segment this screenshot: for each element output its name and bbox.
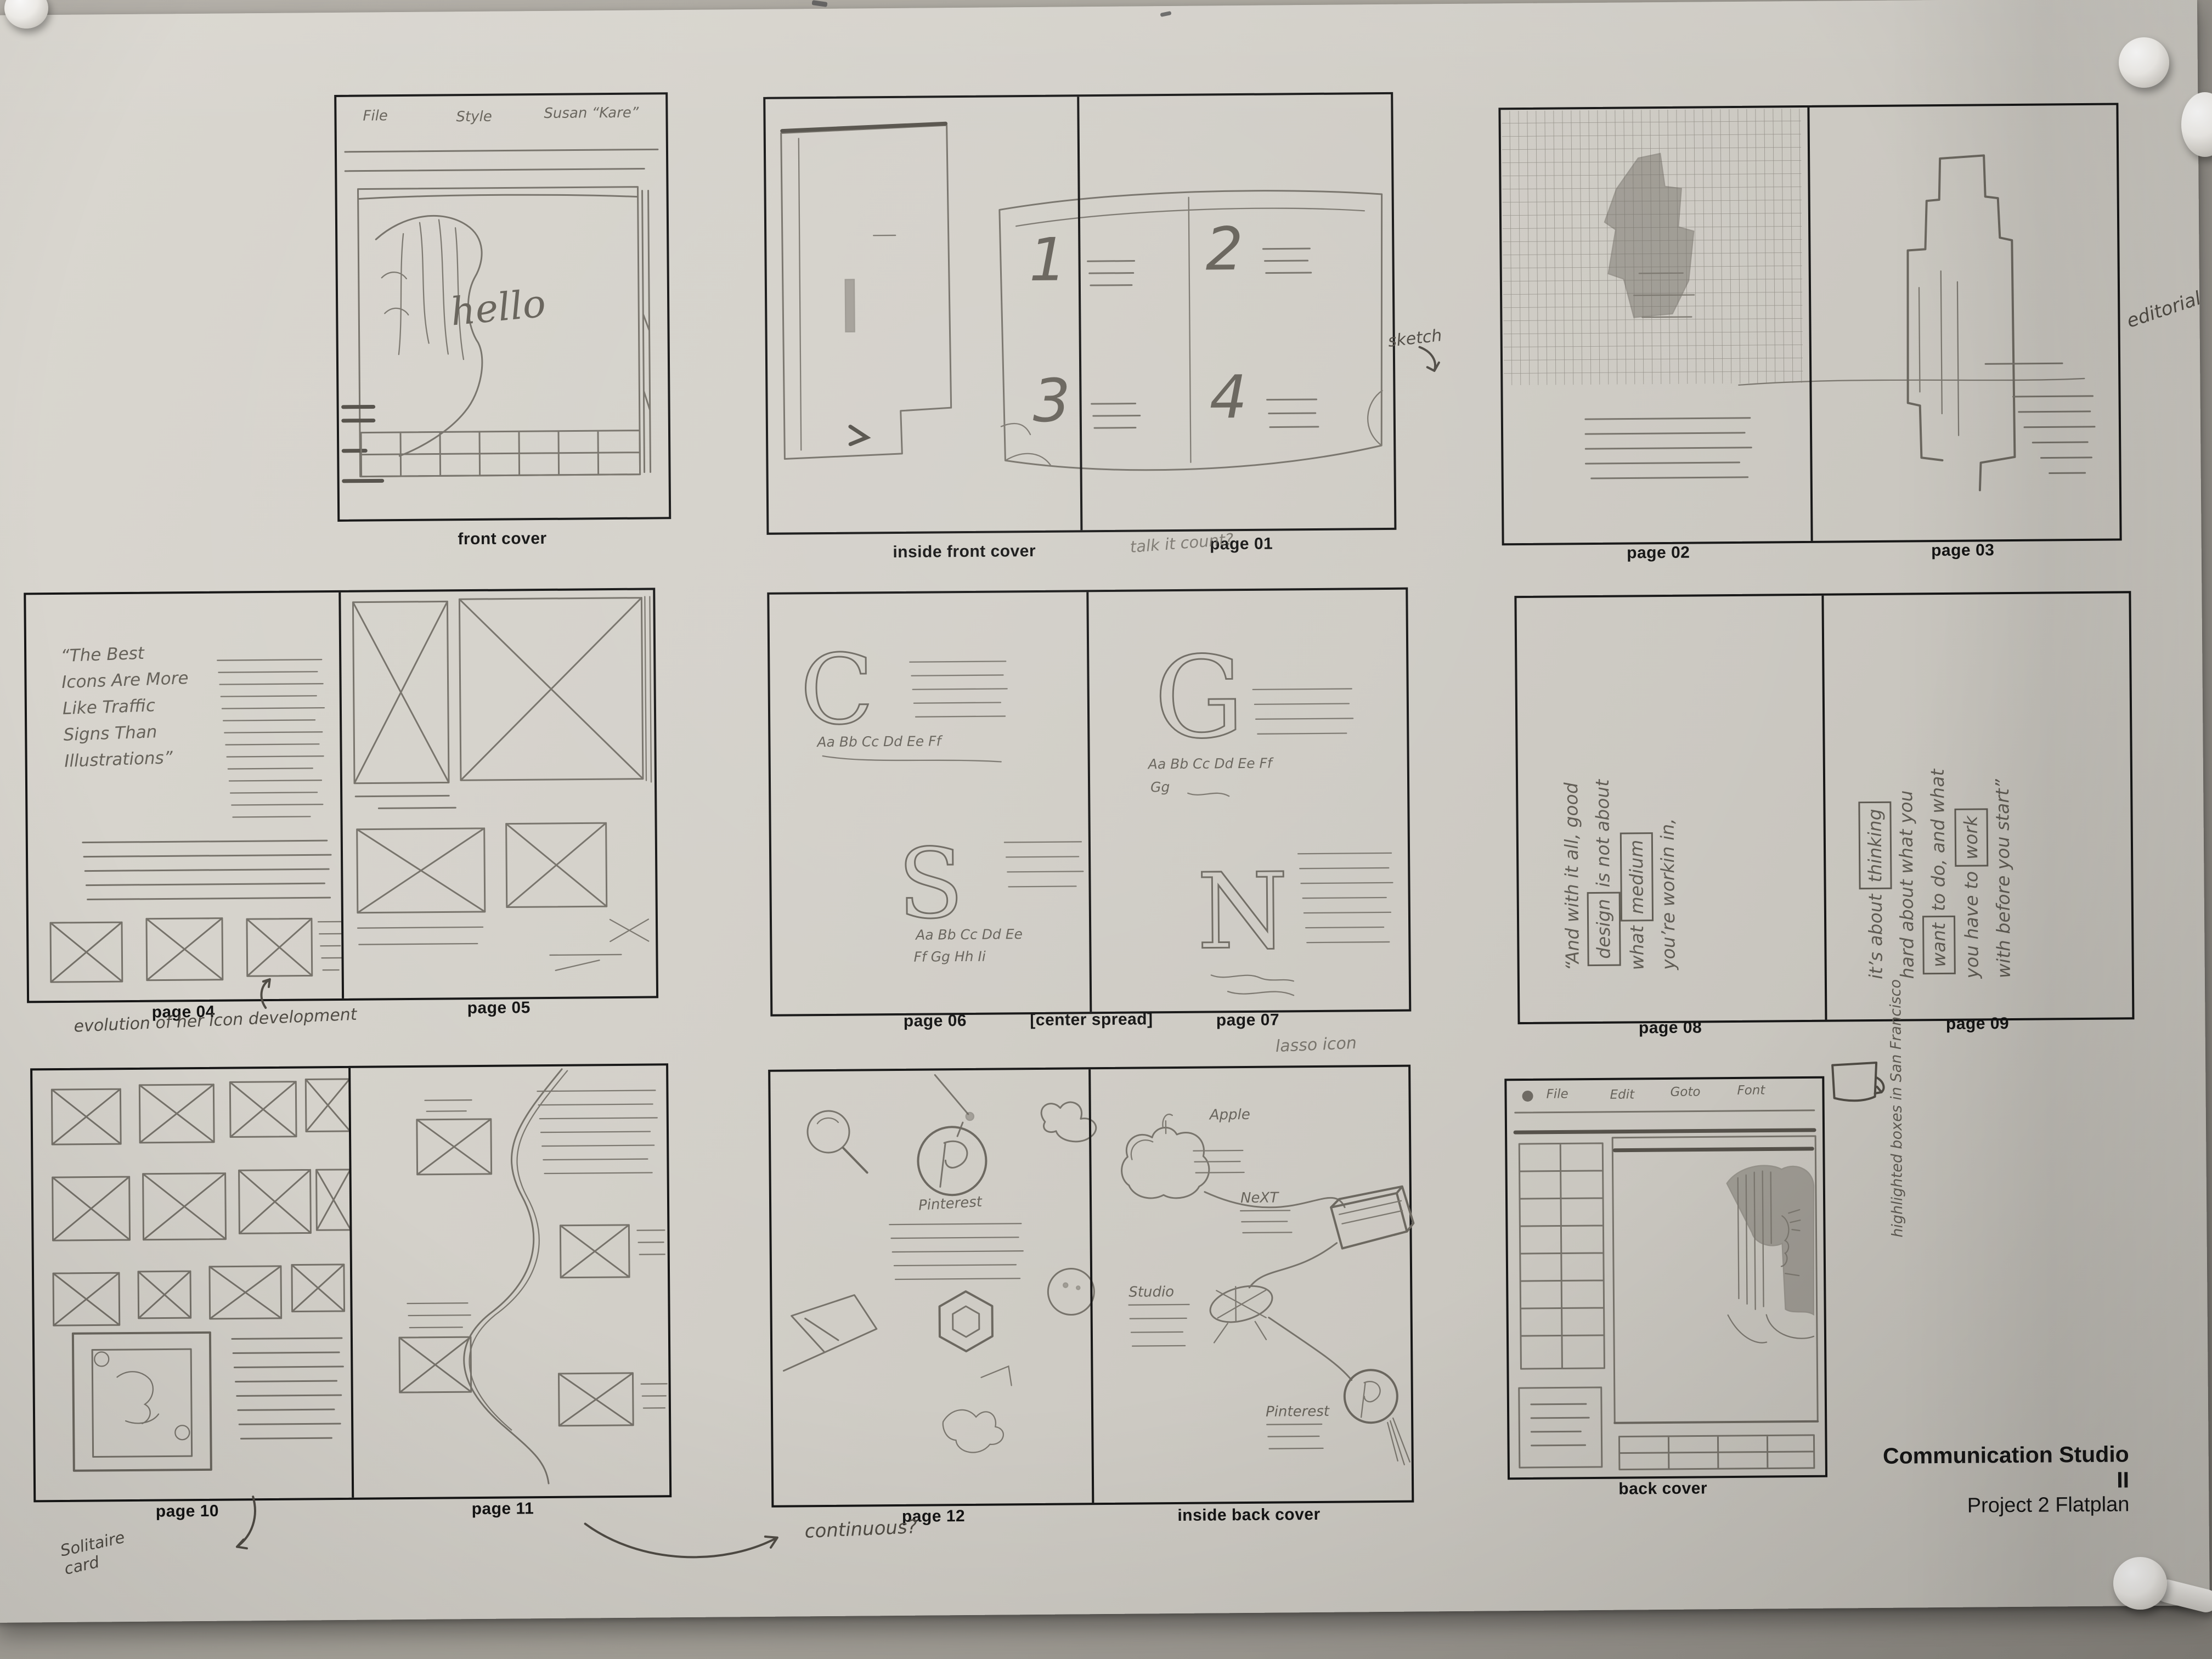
quote-line: you have to: [1961, 871, 1983, 979]
toc-number: 1: [1029, 226, 1067, 295]
label-page10: page 10: [72, 1502, 302, 1522]
fc-menu-item: Susan “Kare”: [544, 105, 639, 122]
annotation-lasso-icon: lasso icon: [1275, 1034, 1357, 1056]
label-inside-back-cover: inside back cover: [1133, 1505, 1364, 1525]
next-label: NeXT: [1240, 1190, 1278, 1207]
label-page07: page 07: [1132, 1010, 1363, 1030]
toc-number: 3: [1032, 366, 1071, 436]
back-cover-sketch: [1506, 1079, 1825, 1477]
bc-menu-item: Font: [1737, 1084, 1765, 1098]
panel-page02-03: [1498, 103, 2121, 545]
arrow-icon: [225, 1494, 264, 1555]
alphabet-row: Gg: [1150, 779, 1170, 795]
label-page03: page 03: [1848, 540, 2078, 561]
studio-label: Studio: [1128, 1284, 1174, 1301]
annotation-evolution: evolution of her icon development: [0, 0, 2197, 15]
wall-mark: [812, 0, 828, 7]
label-page02: page 02: [1543, 543, 1774, 563]
label-inside-front-cover: inside front cover: [849, 541, 1080, 562]
bc-menu-item: Edit: [1610, 1087, 1634, 1102]
quote-line: it’s about: [1865, 894, 1887, 979]
course-title: Communication Studio II: [1871, 1441, 2130, 1495]
quote-line: “And with it all, good: [1560, 782, 1583, 970]
alphabet-row: Aa Bb Cc Dd Ee: [916, 926, 1023, 943]
panel-ifc-page01: 1 2 3 4: [763, 92, 1396, 535]
pinterest-label: Pinterest: [1266, 1403, 1329, 1420]
annotation-text: continuous?: [804, 1516, 918, 1543]
arrow-icon: [1415, 341, 1452, 382]
label-front-cover: front cover: [387, 529, 617, 549]
panel-front-cover: File Style Susan “Kare” hello: [334, 92, 671, 522]
project-subtitle: Project 2 Flatplan: [1871, 1493, 2129, 1519]
annotation-highlighted-boxes: highlighted boxes in San Francisco: [0, 0, 2197, 15]
arrow-icon: [579, 1511, 799, 1573]
quote-line: with before you start”: [1991, 779, 2015, 978]
alphabet-row: Ff Gg Hh Ii: [913, 949, 985, 965]
quote-line: what: [1626, 926, 1648, 970]
annotation-text: Solitaire card: [59, 1522, 158, 1578]
toc-number: 4: [1209, 363, 1248, 432]
quote-line: is not about: [1592, 780, 1614, 888]
panel-page12-ibc: Pinterest Apple NeXT Studio Pinterest: [768, 1065, 1414, 1508]
annotation-editorial: editorial: [2124, 287, 2204, 332]
boxed-word-want: want: [1922, 916, 1956, 975]
hello-script: hello: [449, 281, 548, 335]
annotation-solitaire: Solitaire card: [0, 0, 2197, 15]
alphabet-row: Aa Bb Cc Dd Ee Ff: [1148, 755, 1272, 772]
photo-of-flatplan: File Style Susan “Kare” hello front cove…: [0, 0, 2212, 1659]
fc-menu-item: Style: [456, 109, 492, 126]
panel-page06-07: C S G N Aa Bb Cc Dd Ee Ff Aa Bb Cc Dd Ee…: [767, 588, 1411, 1017]
boxed-word-thinking: thinking: [1858, 802, 1892, 890]
bc-menu-item: File: [1546, 1087, 1568, 1101]
panel-page04-05: “The Best Icons Are More Like Traffic Si…: [24, 588, 658, 1003]
letter-S: S: [898, 828, 964, 940]
flatplan-sheet: File Style Susan “Kare” hello front cove…: [0, 0, 2210, 1623]
page09-rotated-quote: it’s aboutthinking hard about what you w…: [1858, 768, 2019, 979]
apple-label: Apple: [1210, 1107, 1250, 1124]
quote-line: to do, and what: [1927, 769, 1949, 911]
quote-line: hard about what you: [1895, 790, 1918, 979]
page04-quote: “The Best Icons Are More Like Traffic Si…: [60, 639, 191, 775]
page08-rotated-quote: “And with it all, good designis not abou…: [1556, 779, 1684, 971]
pushpin-top-right: [2119, 37, 2169, 88]
letter-N: N: [1197, 850, 1289, 972]
panel-page08-09: “And with it all, good designis not abou…: [1514, 591, 2134, 1024]
alphabet-row: Aa Bb Cc Dd Ee Ff: [817, 733, 941, 750]
bc-menu-item: Goto: [1670, 1085, 1700, 1099]
panel-page10-11: [30, 1063, 672, 1502]
letter-C: C: [800, 634, 874, 746]
boxed-word-medium: medium: [1620, 832, 1654, 921]
letter-G: G: [1154, 633, 1245, 764]
label-back-cover: back cover: [1548, 1479, 1778, 1499]
title-block: Communication Studio II Project 2 Flatpl…: [1871, 1441, 2130, 1519]
spread-divider: [1821, 596, 1827, 1020]
fc-menu-item: File: [363, 108, 388, 124]
toc-number: 2: [1205, 215, 1244, 284]
annotation-text: highlighted boxes in San Francisco: [1886, 1068, 1909, 1238]
label-page05: page 05: [383, 998, 614, 1018]
boxed-word-work: work: [1955, 809, 1988, 867]
panel-back-cover: File Edit Goto Font: [1504, 1076, 1827, 1480]
boxed-word-design: design: [1587, 891, 1621, 966]
label-page08: page 08: [1555, 1018, 1785, 1038]
annotation-sketch: sketch: [1387, 326, 1443, 351]
annotation-continuous: continuous?: [0, 0, 2197, 15]
quote-line: you’re workin in,: [1657, 818, 1679, 970]
pushpin-bottom-right: [2113, 1557, 2167, 1610]
